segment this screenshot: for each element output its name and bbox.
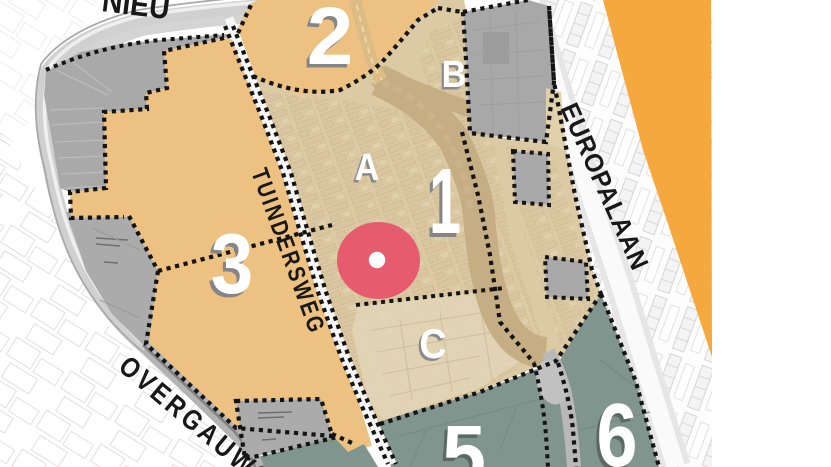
svg-text:5: 5 (442, 409, 486, 467)
svg-text:6: 6 (596, 386, 637, 467)
svg-text:2: 2 (307, 0, 354, 82)
svg-text:C: C (419, 321, 446, 367)
svg-text:A: A (355, 145, 380, 188)
svg-text:1: 1 (429, 150, 461, 253)
svg-text:B: B (442, 52, 467, 95)
svg-text:3: 3 (211, 217, 254, 312)
